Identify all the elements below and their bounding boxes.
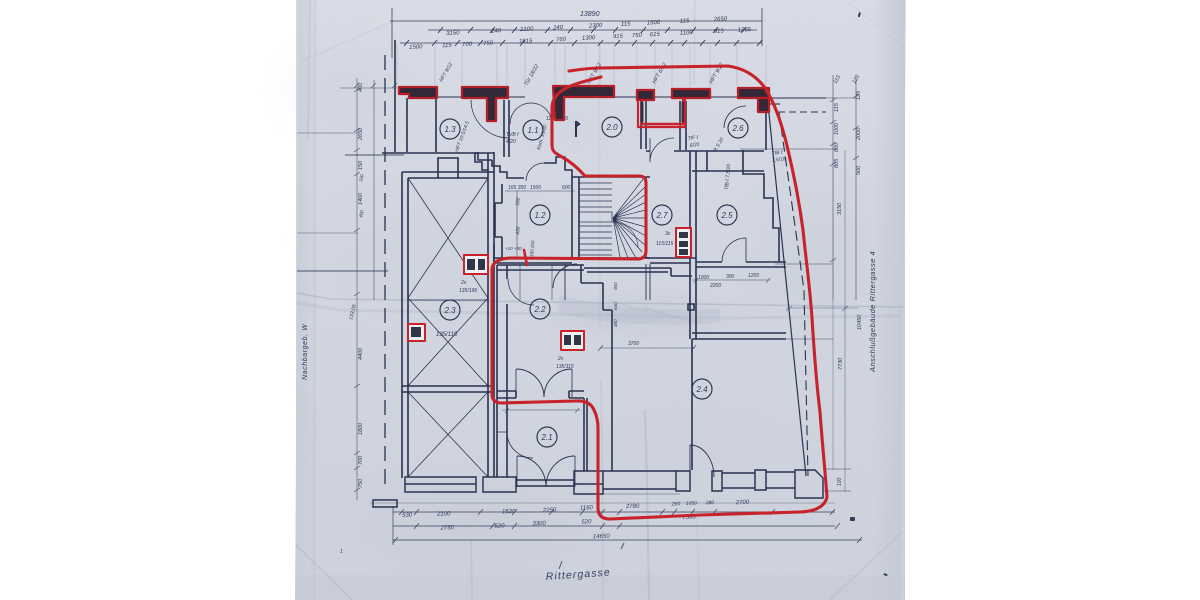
svg-text:3x: 3x xyxy=(665,231,671,237)
svg-text:115/115: 115/115 xyxy=(656,241,674,247)
svg-text:480: 480 xyxy=(613,319,618,327)
svg-text:700: 700 xyxy=(358,455,364,465)
svg-text:2250: 2250 xyxy=(542,508,557,515)
svg-text:1200: 1200 xyxy=(748,273,759,279)
svg-text:2700: 2700 xyxy=(735,500,750,507)
svg-text:1300: 1300 xyxy=(582,35,596,42)
svg-text:14650: 14650 xyxy=(593,534,611,541)
svg-text:135/115: 135/115 xyxy=(436,332,458,338)
svg-text:700: 700 xyxy=(462,42,473,49)
svg-text:Nachbargeb. W: Nachbargeb. W xyxy=(302,323,309,380)
svg-text:1000: 1000 xyxy=(834,122,840,135)
svg-text:240: 240 xyxy=(552,25,564,32)
svg-text:2000: 2000 xyxy=(856,127,862,141)
svg-text:2.0: 2.0 xyxy=(605,123,618,132)
svg-text:115: 115 xyxy=(680,18,691,25)
svg-text:520: 520 xyxy=(494,523,505,529)
svg-text:1: 1 xyxy=(340,549,343,555)
svg-text:2780: 2780 xyxy=(625,504,640,511)
svg-text:100: 100 xyxy=(837,477,843,486)
svg-text:1160: 1160 xyxy=(580,505,594,511)
svg-text:400: 400 xyxy=(358,82,364,92)
svg-text:800: 800 xyxy=(834,142,840,152)
svg-text:1400: 1400 xyxy=(358,192,364,205)
svg-text:2.1: 2.1 xyxy=(540,433,552,442)
svg-text:915: 915 xyxy=(714,28,725,35)
svg-text:2.7: 2.7 xyxy=(655,211,668,220)
svg-text:1520: 1520 xyxy=(502,509,516,515)
svg-text:4/20: 4/20 xyxy=(506,139,516,145)
svg-text:1500: 1500 xyxy=(647,20,661,27)
svg-text:115: 115 xyxy=(834,102,840,112)
svg-text:1.3: 1.3 xyxy=(444,125,456,134)
svg-text:805: 805 xyxy=(834,158,840,168)
svg-text:115: 115 xyxy=(621,21,632,28)
svg-text:1800: 1800 xyxy=(358,422,364,435)
svg-text:1815: 1815 xyxy=(519,38,533,45)
svg-text:125: 125 xyxy=(856,90,862,100)
svg-text:1.1: 1.1 xyxy=(527,126,538,135)
svg-text:430: 430 xyxy=(515,226,522,235)
svg-text:750: 750 xyxy=(358,478,364,488)
svg-text:Anschlußgebäude Rittergasse 4: Anschlußgebäude Rittergasse 4 xyxy=(868,251,877,373)
svg-text:2.4: 2.4 xyxy=(695,385,708,394)
svg-text:2.6: 2.6 xyxy=(731,124,744,133)
svg-text:2.5: 2.5 xyxy=(720,211,733,220)
svg-text:2100: 2100 xyxy=(436,511,451,518)
svg-text:500: 500 xyxy=(856,165,862,175)
svg-text:135/195: 135/195 xyxy=(459,288,477,294)
svg-text:2200: 2200 xyxy=(709,283,721,289)
svg-text:915: 915 xyxy=(613,34,624,41)
svg-text:615: 615 xyxy=(650,32,661,39)
svg-text:1.2: 1.2 xyxy=(534,211,546,220)
svg-text:1500: 1500 xyxy=(409,44,423,51)
svg-text:4400: 4400 xyxy=(358,347,364,360)
svg-text:13890: 13890 xyxy=(580,11,600,18)
svg-text:750: 750 xyxy=(632,33,643,40)
svg-text:150: 150 xyxy=(358,160,364,170)
svg-text:750: 750 xyxy=(483,41,494,48)
svg-text:165 350: 165 350 xyxy=(508,185,526,191)
svg-text:550: 550 xyxy=(515,197,522,206)
svg-text:900: 900 xyxy=(613,282,618,290)
svg-text:240: 240 xyxy=(490,28,502,35)
svg-text:520: 520 xyxy=(581,519,592,525)
svg-text:280: 280 xyxy=(705,500,715,506)
svg-text:1265: 1265 xyxy=(738,27,752,34)
svg-text:2.2: 2.2 xyxy=(533,305,546,314)
svg-text:1500: 1500 xyxy=(530,185,541,191)
svg-text:260: 260 xyxy=(671,501,681,507)
svg-text:2750: 2750 xyxy=(439,525,454,532)
svg-text:300: 300 xyxy=(726,274,735,280)
svg-text:1050: 1050 xyxy=(686,501,698,507)
svg-text:2300: 2300 xyxy=(588,23,603,30)
svg-text:3150: 3150 xyxy=(837,202,843,215)
svg-text:3700: 3700 xyxy=(628,341,639,347)
svg-text:2650: 2650 xyxy=(358,127,364,141)
svg-text:1100: 1100 xyxy=(680,30,694,37)
svg-text:2650: 2650 xyxy=(713,16,728,23)
svg-text:640: 640 xyxy=(613,302,618,310)
svg-text:10450: 10450 xyxy=(857,314,863,330)
svg-text:7730: 7730 xyxy=(838,357,844,370)
svg-text:2100: 2100 xyxy=(519,26,534,33)
svg-text:3300: 3300 xyxy=(532,521,546,527)
svg-text:+10 +30: +10 +30 xyxy=(505,246,522,251)
svg-text:600: 600 xyxy=(562,185,571,191)
svg-text:3150: 3150 xyxy=(446,30,460,37)
svg-text:1000: 1000 xyxy=(698,275,709,281)
svg-text:115: 115 xyxy=(442,43,453,50)
svg-text:135/115: 135/115 xyxy=(556,364,574,370)
svg-text:2.3: 2.3 xyxy=(443,306,456,315)
svg-text:2x: 2x xyxy=(460,280,467,286)
svg-text:530: 530 xyxy=(402,513,413,519)
svg-text:2x: 2x xyxy=(557,356,564,362)
svg-text:TVB f: TVB f xyxy=(506,132,519,138)
svg-text:760: 760 xyxy=(556,37,567,44)
